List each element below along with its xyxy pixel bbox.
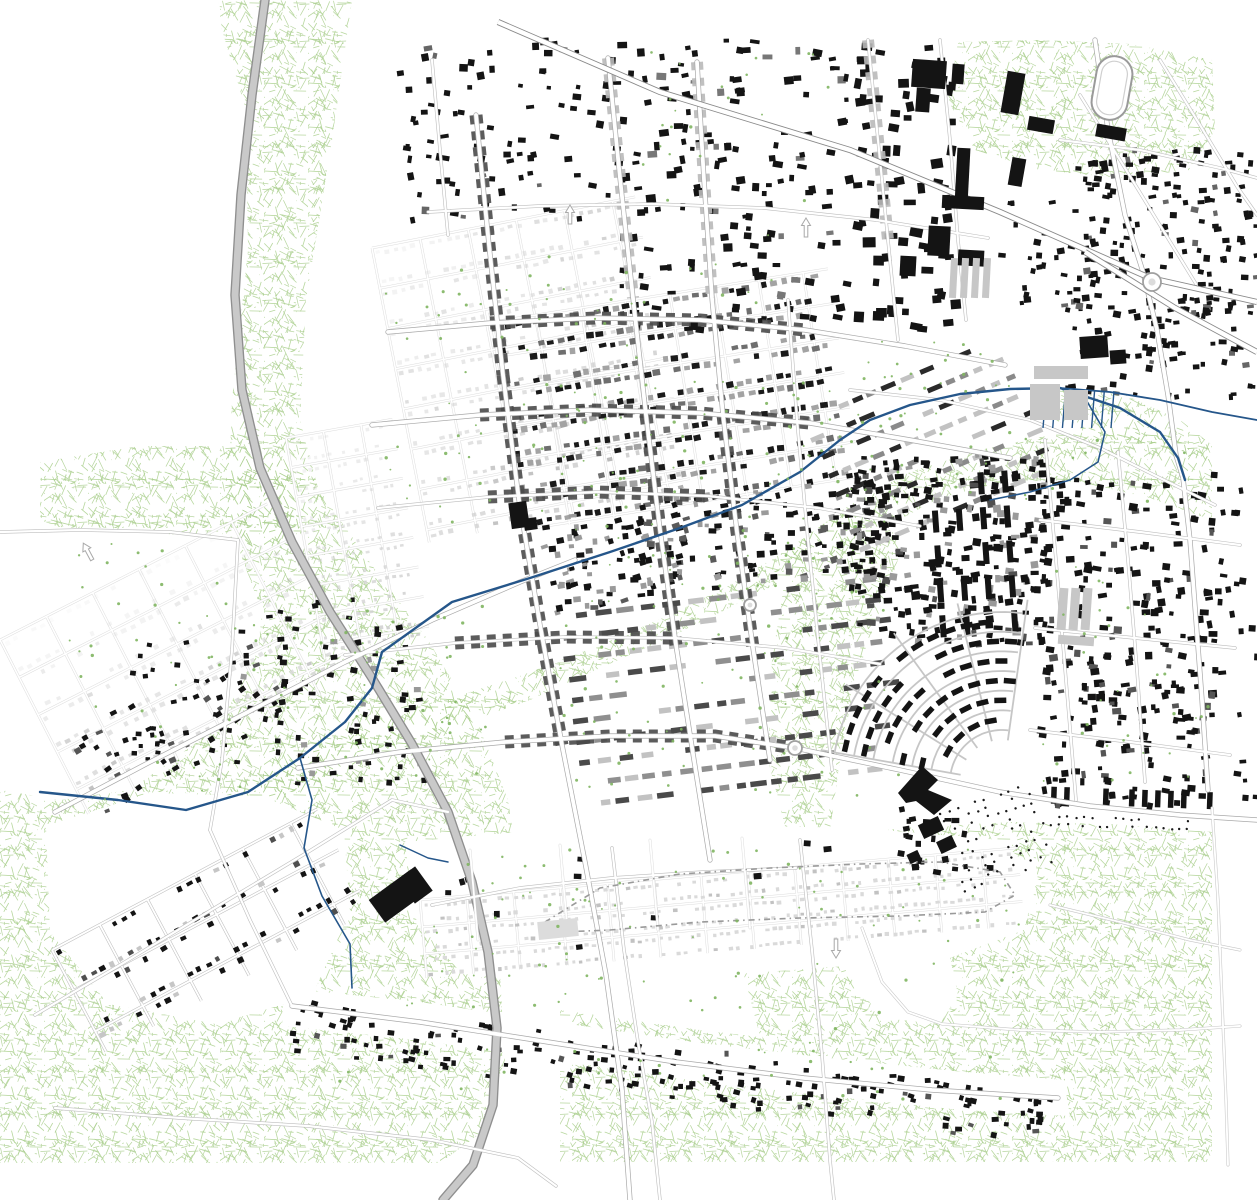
industry-l-a xyxy=(911,59,947,89)
rail-interchange xyxy=(1143,273,1161,291)
industry-t-e xyxy=(958,249,985,266)
school-gray-c xyxy=(1034,366,1088,379)
roundabout-main xyxy=(788,741,802,755)
industry-t-d xyxy=(899,256,916,277)
east-hall-a xyxy=(1079,335,1108,359)
center-hall-b xyxy=(523,517,538,531)
map-viewport[interactable] xyxy=(0,0,1257,1200)
school-gray-b xyxy=(1064,390,1088,420)
east-hall-b xyxy=(1110,349,1127,364)
industry-l-b xyxy=(915,88,931,113)
roundabout-north xyxy=(744,599,756,611)
industry-t-c xyxy=(927,225,951,256)
industry-t-b xyxy=(942,195,985,210)
school-gray-a xyxy=(1030,384,1060,420)
industry-l-c xyxy=(951,64,964,85)
city-figure-ground-map xyxy=(0,0,1257,1200)
